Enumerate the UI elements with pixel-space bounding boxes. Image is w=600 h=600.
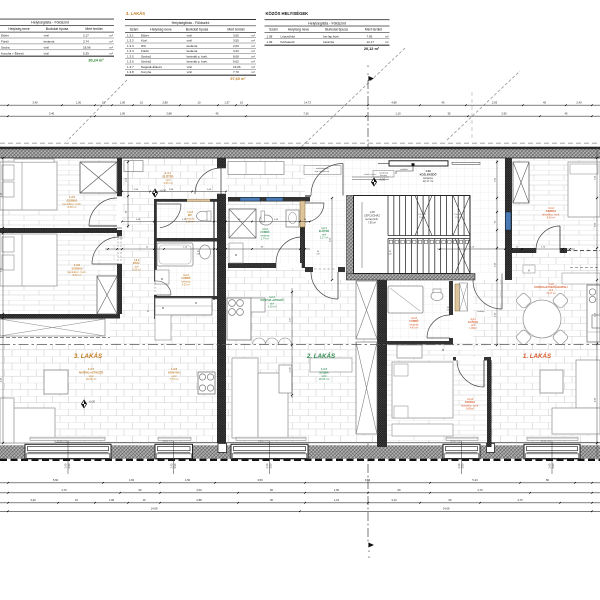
- svg-text:4,88: 4,88: [391, 101, 397, 105]
- svg-text:Helyiség neve: Helyiség neve: [288, 28, 309, 32]
- svg-text:9,59: 9,59: [365, 478, 371, 482]
- svg-text:2. LAKÁS: 2. LAKÁS: [306, 353, 336, 360]
- svg-text:m²: m²: [252, 54, 256, 58]
- svg-text:parap. 0,90: parap. 0,90: [541, 441, 552, 443]
- svg-text:kerámia: kerámia: [187, 49, 198, 53]
- svg-text:parap. 0,90: parap. 0,90: [450, 441, 461, 443]
- svg-text:1.3.6: 1.3.6: [127, 60, 134, 64]
- svg-text:1.08: 1.08: [267, 34, 273, 38]
- svg-text:Közl.: Közl.: [141, 39, 148, 43]
- svg-text:+0,00: +0,00: [89, 400, 96, 404]
- svg-text:7,70: 7,70: [233, 70, 239, 74]
- svg-text:18,96 m²: 18,96 m²: [319, 377, 330, 381]
- svg-text:Mért terület: Mért terület: [365, 28, 382, 32]
- svg-text:10: 10: [140, 101, 143, 105]
- svg-text:60: 60: [449, 498, 452, 502]
- svg-text:1,60: 1,60: [129, 478, 135, 482]
- svg-text:2,40: 2,40: [576, 101, 582, 105]
- svg-text:3,10: 3,10: [391, 498, 397, 502]
- svg-text:m²: m²: [252, 60, 256, 64]
- svg-text:kerámia: kerámia: [44, 40, 55, 44]
- svg-text:3. LAKÁS: 3. LAKÁS: [126, 11, 145, 16]
- svg-text:szekrény: szekrény: [477, 311, 484, 313]
- svg-text:SZOBA1: SZOBA1: [67, 198, 78, 202]
- svg-text:1.3.1: 1.3.1: [127, 33, 134, 37]
- svg-text:3. LAKÁS: 3. LAKÁS: [74, 353, 103, 360]
- svg-text:10: 10: [198, 101, 201, 105]
- svg-text:Fürdő: Fürdő: [141, 49, 149, 53]
- svg-text:kerámia: kerámia: [423, 176, 433, 180]
- svg-text:3,40: 3,40: [49, 112, 55, 116]
- svg-text:4,00: 4,00: [196, 488, 202, 492]
- svg-text:Előtér: Előtér: [1, 34, 9, 38]
- svg-text:vinil: vinil: [89, 374, 94, 378]
- svg-text:12,17: 12,17: [367, 40, 375, 44]
- svg-text:1.3.8: 1.3.8: [127, 70, 134, 74]
- svg-text:1. LAKÁS: 1. LAKÁS: [523, 353, 552, 360]
- svg-text:SZOBA: SZOBA: [319, 370, 328, 374]
- svg-text:vinil: vinil: [187, 39, 193, 43]
- svg-text:KONYHA: KONYHA: [168, 370, 180, 374]
- svg-text:Lépcsőház: Lépcsőház: [281, 34, 296, 38]
- svg-text:Szám: Szám: [130, 28, 139, 32]
- svg-text:7,26: 7,26: [303, 112, 309, 116]
- svg-text:8,08 m²: 8,08 m²: [67, 205, 76, 209]
- svg-text:0,90: 0,90: [462, 463, 465, 468]
- svg-text:m²: m²: [110, 34, 114, 38]
- svg-text:8,08: 8,08: [233, 54, 239, 58]
- svg-text:3,74: 3,74: [83, 40, 89, 44]
- svg-text:m²: m²: [385, 34, 389, 38]
- svg-text:Helyiséglista - Földszint: Helyiséglista - Földszint: [308, 21, 346, 25]
- svg-text:szellőző: szellőző: [400, 169, 408, 171]
- svg-text:4,23 m²: 4,23 m²: [182, 284, 191, 287]
- svg-text:parap. 0,90: parap. 0,90: [57, 441, 68, 443]
- svg-text:Burkolat típusa: Burkolat típusa: [46, 27, 69, 31]
- svg-text:szintkülönbség: szintkülönbség: [316, 167, 329, 170]
- svg-text:45: 45: [543, 101, 546, 105]
- svg-text:3,40: 3,40: [32, 101, 38, 105]
- svg-text:vinil: vinil: [44, 34, 50, 38]
- svg-text:1,37: 1,37: [224, 101, 230, 105]
- svg-text:m²: m²: [110, 46, 114, 50]
- svg-text:3,74 m²: 3,74 m²: [261, 238, 270, 241]
- svg-text:1.3.5: 1.3.5: [127, 54, 134, 58]
- svg-text:Szoba1: Szoba1: [141, 54, 152, 58]
- svg-text:+0,00: +0,00: [290, 366, 292, 372]
- svg-text:Helyiség neve: Helyiség neve: [150, 28, 171, 32]
- svg-text:lásd: helyszínrajz: lásd: helyszínrajz: [315, 170, 330, 173]
- svg-text:WC: WC: [141, 44, 147, 48]
- svg-text:H: H: [528, 269, 530, 273]
- svg-text:30: 30: [270, 498, 273, 502]
- svg-text:1.08: 1.08: [369, 210, 375, 214]
- svg-text:Fürdő: Fürdő: [1, 40, 9, 44]
- svg-text:2,17: 2,17: [83, 34, 89, 38]
- svg-text:vinil: vinil: [44, 46, 50, 50]
- svg-text:1.3.1: 1.3.1: [165, 171, 171, 175]
- svg-text:1,90: 1,90: [109, 498, 115, 502]
- svg-text:1.3.7: 1.3.7: [127, 65, 134, 69]
- svg-text:3,50: 3,50: [257, 478, 263, 482]
- svg-text:vinil: vinil: [44, 51, 50, 55]
- svg-text:Helyiséglista - Földszint: Helyiséglista - Földszint: [172, 21, 210, 25]
- svg-text:A: A: [368, 549, 370, 553]
- svg-text:8,40 m²: 8,40 m²: [547, 217, 556, 220]
- svg-text:7,95: 7,95: [367, 34, 373, 38]
- svg-text:laminált p. burk.: laminált p. burk.: [187, 60, 208, 64]
- svg-text:4,70: 4,70: [477, 488, 483, 492]
- svg-text:1.3.8: 1.3.8: [171, 367, 177, 371]
- svg-text:45: 45: [565, 112, 568, 116]
- svg-text:kerámia: kerámia: [323, 40, 334, 44]
- svg-text:1,00: 1,00: [76, 101, 82, 105]
- svg-text:2,88: 2,88: [162, 101, 168, 105]
- svg-text:m²: m²: [252, 44, 256, 48]
- svg-text:2,88: 2,88: [196, 498, 202, 502]
- svg-text:2,00: 2,00: [233, 44, 239, 48]
- svg-text:45: 45: [216, 112, 219, 116]
- svg-text:0,90: 0,90: [552, 463, 555, 468]
- svg-text:1,10: 1,10: [395, 112, 401, 116]
- svg-text:vinil: vinil: [187, 33, 193, 37]
- svg-text:10: 10: [102, 101, 105, 105]
- svg-text:1,50: 1,50: [185, 478, 191, 482]
- svg-text:5,10: 5,10: [472, 478, 478, 482]
- svg-text:H: H: [147, 309, 149, 313]
- svg-text:3,40: 3,40: [30, 498, 36, 502]
- svg-text:9,62 m²: 9,62 m²: [72, 273, 81, 277]
- svg-text:12,17 m²: 12,17 m²: [423, 179, 434, 183]
- svg-text:2,17 m²: 2,17 m²: [320, 237, 329, 240]
- svg-text:Szám: Szám: [269, 28, 278, 32]
- svg-text:30,24 m²: 30,24 m²: [88, 58, 104, 62]
- svg-text:19,06 m²: 19,06 m²: [86, 377, 97, 381]
- svg-text:60: 60: [398, 488, 401, 492]
- svg-text:60: 60: [270, 488, 273, 492]
- svg-text:m²: m²: [252, 65, 256, 69]
- svg-text:4,43 m²: 4,43 m²: [410, 327, 419, 330]
- svg-text:20,12 m²: 20,12 m²: [364, 47, 380, 51]
- svg-text:m²: m²: [252, 70, 256, 74]
- svg-text:Szoba2: Szoba2: [141, 60, 152, 64]
- svg-text:14,69: 14,69: [443, 507, 450, 511]
- svg-text:9,62: 9,62: [233, 60, 239, 64]
- svg-text:vinil: vinil: [187, 70, 193, 74]
- svg-text:1.3.7: 1.3.7: [88, 367, 94, 371]
- svg-text:8,85m²: 8,85m²: [466, 408, 474, 411]
- svg-text:1.3.4: 1.3.4: [127, 49, 134, 53]
- svg-text:ker.lap.burk.: ker.lap.burk.: [323, 34, 340, 38]
- svg-text:laminált p. burk.: laminált p. burk.: [187, 54, 208, 58]
- svg-text:10: 10: [75, 498, 78, 502]
- svg-text:18,96: 18,96: [83, 46, 91, 50]
- svg-text:parap. 0,90: parap. 0,90: [163, 441, 174, 443]
- svg-text:60: 60: [139, 488, 142, 492]
- svg-text:m²: m²: [110, 40, 114, 44]
- svg-text:2,90: 2,90: [501, 112, 507, 116]
- svg-text:17x2 m: 17x2 m: [419, 217, 426, 219]
- svg-text:13x16,9: 13x16,9: [454, 214, 463, 216]
- svg-text:lefedés vonala: lefedés vonala: [364, 174, 376, 176]
- svg-text:1.09: 1.09: [425, 169, 431, 173]
- svg-text:parap. 0,90: parap. 0,90: [258, 441, 269, 443]
- svg-text:35: 35: [448, 112, 451, 116]
- svg-text:4,23: 4,23: [233, 49, 239, 53]
- svg-text:Szoba: Szoba: [1, 46, 10, 50]
- svg-text:Burkolat típusa: Burkolat típusa: [325, 28, 348, 32]
- svg-text:m²: m²: [110, 51, 114, 55]
- svg-text:1.09: 1.09: [267, 40, 273, 44]
- svg-text:M: M: [195, 301, 197, 305]
- svg-text:m²: m²: [385, 40, 389, 44]
- svg-text:A: A: [367, 72, 369, 76]
- svg-text:Helyiség neve: Helyiség neve: [8, 27, 29, 31]
- svg-text:11,37 m²: 11,37 m²: [546, 292, 555, 295]
- svg-text:0,90: 0,90: [68, 463, 71, 468]
- svg-text:1.3.6: 1.3.6: [74, 263, 80, 267]
- svg-text:SZOBA2: SZOBA2: [72, 266, 83, 270]
- svg-text:Közlekedő: Közlekedő: [281, 40, 295, 44]
- svg-text:vinil: vinil: [187, 65, 193, 69]
- svg-text:+0,00: +0,00: [160, 189, 167, 193]
- svg-text:5,60: 5,60: [53, 478, 59, 482]
- svg-text:vinil: vinil: [166, 178, 171, 182]
- svg-text:vinil: vinil: [322, 374, 327, 378]
- svg-text:2,88: 2,88: [166, 112, 172, 116]
- svg-text:Előtér: Előtér: [141, 33, 149, 37]
- svg-text:KÖZÖS HELYISÉGEK: KÖZÖS HELYISÉGEK: [266, 11, 309, 16]
- svg-text:3,65: 3,65: [233, 33, 239, 37]
- svg-text:m²: m²: [252, 33, 256, 37]
- svg-text:10: 10: [143, 498, 146, 502]
- svg-text:80: 80: [546, 478, 549, 482]
- svg-text:0,90: 0,90: [270, 463, 273, 468]
- svg-text:3,65 m²: 3,65 m²: [163, 181, 172, 185]
- svg-text:1.3.2: 1.3.2: [127, 39, 134, 43]
- svg-text:1,95m²: 1,95m²: [469, 327, 477, 330]
- svg-text:Mért terület: Mért terület: [227, 28, 244, 32]
- svg-text:7,95 m²: 7,95 m²: [368, 222, 376, 225]
- svg-text:0,90: 0,90: [174, 463, 177, 468]
- svg-text:Burkolat típusa: Burkolat típusa: [186, 28, 209, 32]
- svg-text:2,93: 2,93: [492, 101, 498, 105]
- svg-text:+0,00: +0,00: [379, 178, 386, 182]
- svg-text:lásd terv: lásd terv: [380, 174, 387, 177]
- svg-text:1.3.3: 1.3.3: [127, 44, 134, 48]
- svg-text:7,70 m²: 7,70 m²: [169, 377, 178, 381]
- svg-text:3,55 m²: 3,55 m²: [132, 269, 141, 272]
- svg-text:laminált p. burk.: laminált p. burk.: [63, 202, 82, 206]
- svg-text:1,90: 1,90: [120, 101, 126, 105]
- svg-text:13x16,9: 13x16,9: [418, 214, 427, 216]
- svg-text:4,70: 4,70: [517, 498, 523, 502]
- svg-text:14,69: 14,69: [151, 507, 158, 511]
- svg-text:57,69 m²: 57,69 m²: [230, 77, 246, 81]
- svg-text:3,55: 3,55: [233, 39, 239, 43]
- svg-text:m²: m²: [252, 49, 256, 53]
- svg-text:45: 45: [442, 101, 445, 105]
- svg-text:1,50: 1,50: [334, 488, 340, 492]
- svg-text:kerámia: kerámia: [187, 44, 198, 48]
- svg-text:2,00 m²: 2,00 m²: [186, 221, 195, 224]
- svg-text:17x2 m: 17x2 m: [455, 217, 462, 219]
- svg-text:14,73: 14,73: [304, 101, 311, 105]
- svg-text:5,39: 5,39: [83, 51, 89, 55]
- svg-text:vinil: vinil: [172, 374, 177, 378]
- svg-text:10: 10: [240, 101, 243, 105]
- svg-text:19,06: 19,06: [233, 65, 241, 69]
- svg-text:1.2.2: 1.2.2: [321, 367, 327, 371]
- svg-text:laminált p. burk.: laminált p. burk.: [68, 270, 87, 274]
- svg-text:1,90: 1,90: [120, 112, 126, 116]
- svg-text:Nappali+Étkező: Nappali+Étkező: [141, 64, 162, 69]
- svg-text:A: A: [368, 555, 370, 559]
- svg-text:Konyha: Konyha: [141, 70, 152, 74]
- svg-text:m²: m²: [252, 39, 256, 43]
- svg-text:Helyiséglista - Földszint: Helyiséglista - Földszint: [31, 21, 69, 25]
- svg-text:1.3.5: 1.3.5: [69, 195, 75, 199]
- svg-text:A: A: [367, 64, 369, 68]
- svg-text:4,70: 4,70: [61, 488, 67, 492]
- svg-text:Konyha + Étkező: Konyha + Étkező: [1, 50, 24, 55]
- svg-text:1,10: 1,10: [334, 498, 340, 502]
- svg-text:5,39 m²: 5,39 m²: [268, 306, 277, 309]
- svg-text:Mért terület: Mért terület: [85, 27, 102, 31]
